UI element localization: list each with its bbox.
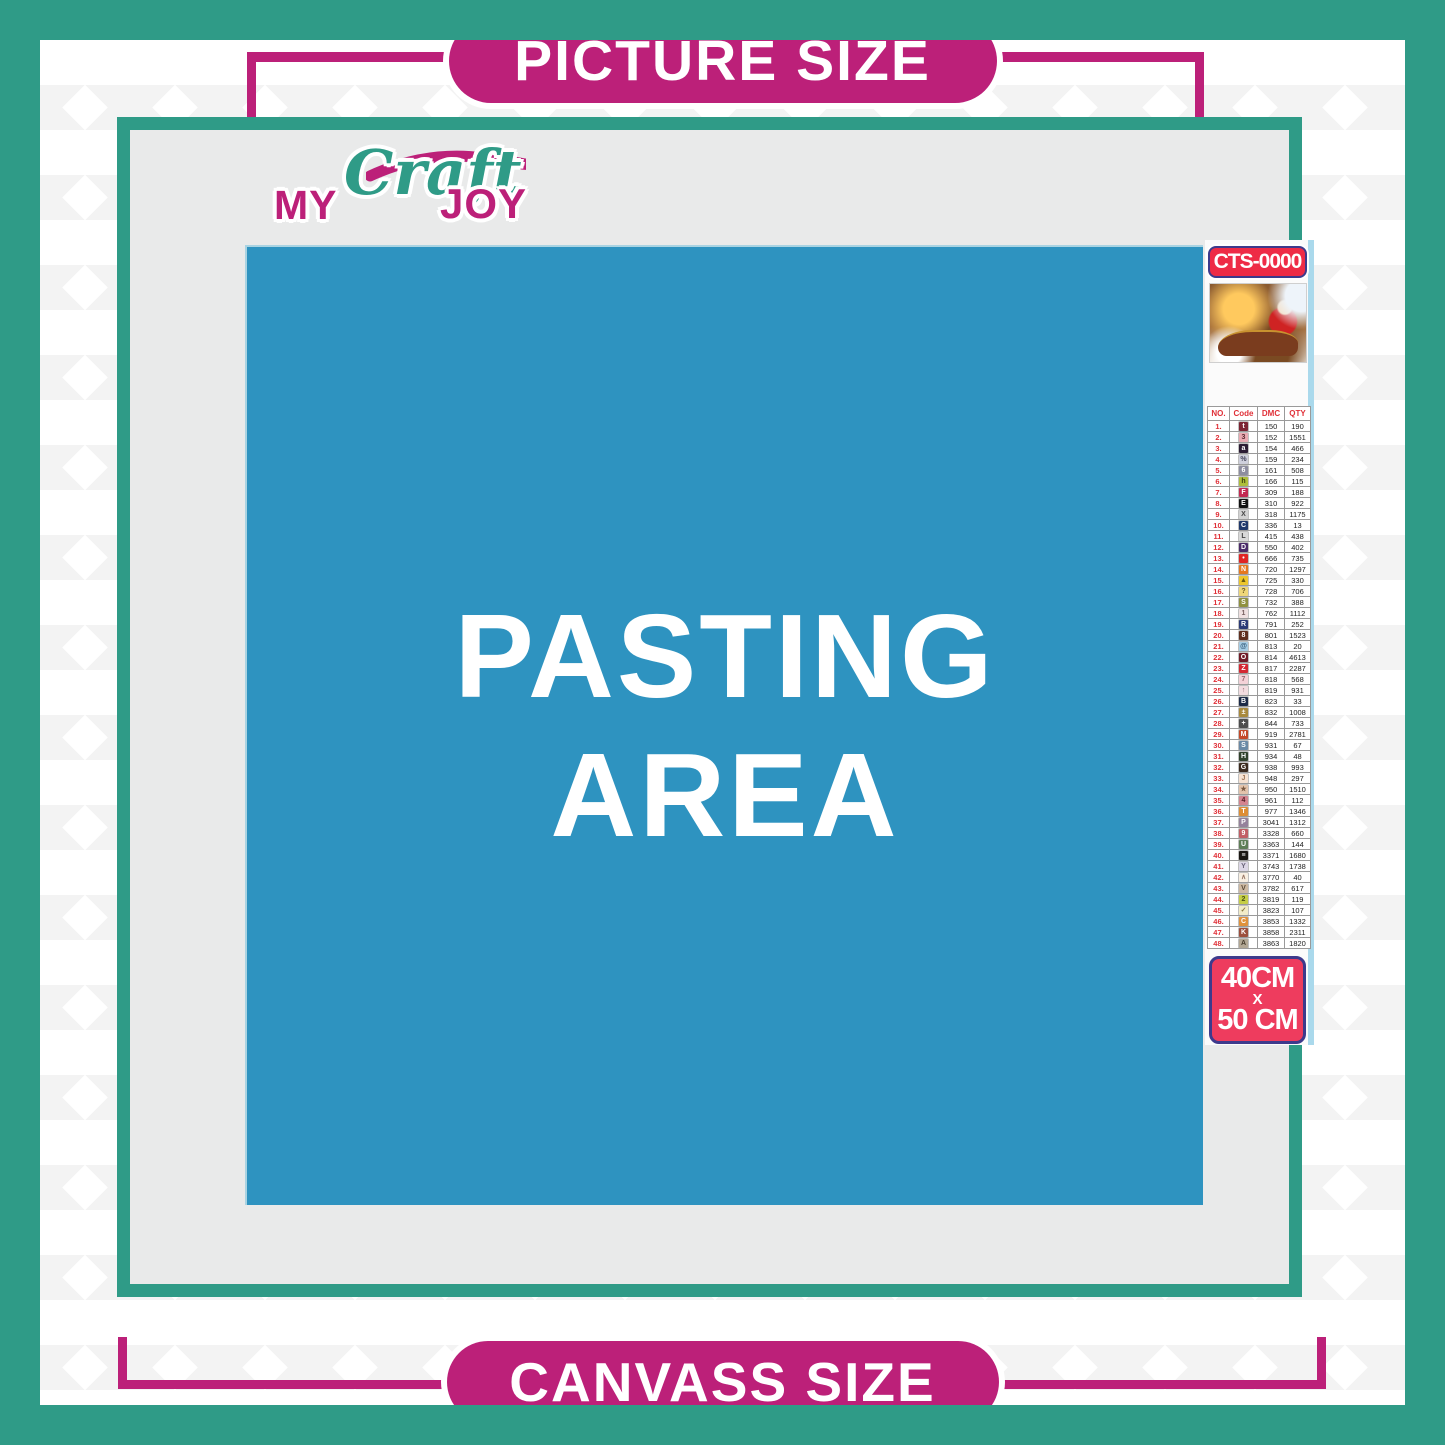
legend-row: 11.L415438 xyxy=(1208,531,1311,542)
legend-cell-no: 47. xyxy=(1208,927,1230,938)
legend-row: 2.31521551 xyxy=(1208,432,1311,443)
legend-cell-no: 44. xyxy=(1208,894,1230,905)
legend-cell-qty: 1008 xyxy=(1285,707,1311,718)
legend-cell-dmc: 310 xyxy=(1258,498,1285,509)
color-symbol-icon: S xyxy=(1239,598,1248,607)
legend-cell-no: 23. xyxy=(1208,663,1230,674)
legend-cell-dmc: 152 xyxy=(1258,432,1285,443)
legend-cell-code: M xyxy=(1230,729,1258,740)
legend-cell-code: ↑ xyxy=(1230,685,1258,696)
legend-cell-qty: 48 xyxy=(1285,751,1311,762)
legend-cell-qty: 297 xyxy=(1285,773,1311,784)
legend-cell-code: 1 xyxy=(1230,608,1258,619)
color-symbol-icon: ∧ xyxy=(1239,873,1248,882)
color-symbol-icon: 9 xyxy=(1239,829,1248,838)
legend-row: 36.T9771346 xyxy=(1208,806,1311,817)
legend-sheet: CTS-0000 NO. Code DMC QTY 1.t1501902.315… xyxy=(1205,240,1314,1045)
legend-row: 28.+844733 xyxy=(1208,718,1311,729)
legend-row: 27.±8321008 xyxy=(1208,707,1311,718)
legend-cell-dmc: 725 xyxy=(1258,575,1285,586)
legend-cell-code: ▲ xyxy=(1230,575,1258,586)
legend-cell-dmc: 318 xyxy=(1258,509,1285,520)
color-symbol-icon: 2 xyxy=(1239,895,1248,904)
legend-header-no: NO. xyxy=(1208,407,1230,421)
legend-cell-code: L xyxy=(1230,531,1258,542)
legend-row: 44.23819119 xyxy=(1208,894,1311,905)
legend-cell-code: Y xyxy=(1230,861,1258,872)
legend-cell-code: 2 xyxy=(1230,894,1258,905)
legend-row: 3.a154466 xyxy=(1208,443,1311,454)
legend-cell-no: 7. xyxy=(1208,487,1230,498)
legend-cell-dmc: 720 xyxy=(1258,564,1285,575)
legend-cell-qty: 1175 xyxy=(1285,509,1311,520)
legend-cell-dmc: 934 xyxy=(1258,751,1285,762)
canvass-size-pill: CANVASS SIZE xyxy=(447,1341,999,1423)
canvas-size-badge: 40CM X 50 CM xyxy=(1209,956,1306,1044)
legend-cell-qty: 1112 xyxy=(1285,608,1311,619)
color-symbol-icon: ↑ xyxy=(1239,686,1248,695)
legend-cell-qty: 1332 xyxy=(1285,916,1311,927)
legend-cell-qty: 706 xyxy=(1285,586,1311,597)
color-symbol-icon: J xyxy=(1239,774,1248,783)
legend-cell-code: ± xyxy=(1230,707,1258,718)
legend-cell-qty: 40 xyxy=(1285,872,1311,883)
color-symbol-icon: ± xyxy=(1239,708,1248,717)
legend-cell-qty: 190 xyxy=(1285,421,1311,432)
legend-cell-qty: 2311 xyxy=(1285,927,1311,938)
color-symbol-icon: G xyxy=(1239,763,1248,772)
legend-cell-dmc: 166 xyxy=(1258,476,1285,487)
legend-cell-dmc: 666 xyxy=(1258,553,1285,564)
legend-cell-qty: 33 xyxy=(1285,696,1311,707)
color-symbol-icon: N xyxy=(1239,565,1248,574)
color-symbol-icon: T xyxy=(1239,807,1248,816)
legend-cell-no: 39. xyxy=(1208,839,1230,850)
legend-row: 13.•666735 xyxy=(1208,553,1311,564)
legend-cell-dmc: 938 xyxy=(1258,762,1285,773)
legend-cell-dmc: 961 xyxy=(1258,795,1285,806)
legend-cell-qty: 144 xyxy=(1285,839,1311,850)
legend-row: 8.E310922 xyxy=(1208,498,1311,509)
legend-cell-qty: 438 xyxy=(1285,531,1311,542)
legend-cell-no: 40. xyxy=(1208,850,1230,861)
legend-cell-dmc: 814 xyxy=(1258,652,1285,663)
legend-cell-code: X xyxy=(1230,509,1258,520)
legend-cell-qty: 234 xyxy=(1285,454,1311,465)
legend-cell-no: 24. xyxy=(1208,674,1230,685)
legend-cell-no: 1. xyxy=(1208,421,1230,432)
legend-cell-dmc: 3328 xyxy=(1258,828,1285,839)
legend-cell-no: 37. xyxy=(1208,817,1230,828)
legend-row: 30.S93167 xyxy=(1208,740,1311,751)
legend-cell-code: J xyxy=(1230,773,1258,784)
legend-cell-code: C xyxy=(1230,916,1258,927)
color-symbol-icon: D xyxy=(1239,543,1248,552)
color-symbol-icon: ★ xyxy=(1239,785,1248,794)
legend-cell-qty: 252 xyxy=(1285,619,1311,630)
legend-cell-code: 9 xyxy=(1230,828,1258,839)
sku-badge: CTS-0000 xyxy=(1208,246,1307,278)
legend-cell-dmc: 415 xyxy=(1258,531,1285,542)
legend-row: 22.O8144613 xyxy=(1208,652,1311,663)
legend-cell-no: 48. xyxy=(1208,938,1230,949)
legend-cell-dmc: 3853 xyxy=(1258,916,1285,927)
color-symbol-icon: 8 xyxy=(1239,631,1248,640)
legend-cell-qty: 508 xyxy=(1285,465,1311,476)
color-symbol-icon: M xyxy=(1239,730,1248,739)
legend-cell-code: B xyxy=(1230,696,1258,707)
legend-row: 33.J948297 xyxy=(1208,773,1311,784)
legend-cell-qty: 13 xyxy=(1285,520,1311,531)
legend-cell-no: 33. xyxy=(1208,773,1230,784)
legend-cell-no: 25. xyxy=(1208,685,1230,696)
logo-word-joy: JOY xyxy=(440,180,527,228)
legend-cell-dmc: 762 xyxy=(1258,608,1285,619)
legend-row: 19.R791252 xyxy=(1208,619,1311,630)
legend-cell-code: a xyxy=(1230,443,1258,454)
legend-cell-no: 9. xyxy=(1208,509,1230,520)
legend-cell-no: 35. xyxy=(1208,795,1230,806)
color-symbol-icon: ▲ xyxy=(1239,576,1248,585)
legend-row: 6.h166115 xyxy=(1208,476,1311,487)
legend-row: 17.S732388 xyxy=(1208,597,1311,608)
color-legend-table: NO. Code DMC QTY 1.t1501902.315215513.a1… xyxy=(1207,406,1311,949)
color-symbol-icon: V xyxy=(1239,884,1248,893)
color-symbol-icon: F xyxy=(1239,488,1248,497)
legend-header-dmc: DMC xyxy=(1258,407,1285,421)
legend-cell-code: E xyxy=(1230,498,1258,509)
size-width-label: 40CM xyxy=(1221,965,1294,993)
legend-cell-code: ∧ xyxy=(1230,872,1258,883)
legend-header-row: NO. Code DMC QTY xyxy=(1208,407,1311,421)
legend-cell-dmc: 3823 xyxy=(1258,905,1285,916)
legend-cell-code: t xyxy=(1230,421,1258,432)
legend-cell-dmc: 948 xyxy=(1258,773,1285,784)
pasting-area: PASTING AREA xyxy=(245,245,1203,1205)
legend-cell-dmc: 3858 xyxy=(1258,927,1285,938)
color-symbol-icon: 4 xyxy=(1239,796,1248,805)
legend-cell-no: 17. xyxy=(1208,597,1230,608)
legend-row: 35.4961112 xyxy=(1208,795,1311,806)
legend-cell-dmc: 336 xyxy=(1258,520,1285,531)
logo-word-my: MY xyxy=(274,182,338,229)
legend-cell-no: 45. xyxy=(1208,905,1230,916)
legend-cell-qty: 188 xyxy=(1285,487,1311,498)
legend-cell-qty: 2781 xyxy=(1285,729,1311,740)
legend-cell-dmc: 3041 xyxy=(1258,817,1285,828)
legend-cell-no: 18. xyxy=(1208,608,1230,619)
legend-cell-no: 13. xyxy=(1208,553,1230,564)
legend-cell-qty: 1738 xyxy=(1285,861,1311,872)
legend-cell-dmc: 3782 xyxy=(1258,883,1285,894)
legend-row: 21.@81320 xyxy=(1208,641,1311,652)
legend-cell-code: ≡ xyxy=(1230,850,1258,861)
legend-cell-code: S xyxy=(1230,597,1258,608)
legend-cell-dmc: 819 xyxy=(1258,685,1285,696)
color-symbol-icon: @ xyxy=(1239,642,1248,651)
legend-row: 9.X3181175 xyxy=(1208,509,1311,520)
legend-row: 34.★9501510 xyxy=(1208,784,1311,795)
legend-row: 40.≡33711680 xyxy=(1208,850,1311,861)
legend-row: 4.%159234 xyxy=(1208,454,1311,465)
color-symbol-icon: O xyxy=(1239,653,1248,662)
legend-cell-code: + xyxy=(1230,718,1258,729)
legend-cell-dmc: 3371 xyxy=(1258,850,1285,861)
legend-cell-qty: 107 xyxy=(1285,905,1311,916)
legend-row: 16.?728706 xyxy=(1208,586,1311,597)
legend-cell-qty: 922 xyxy=(1285,498,1311,509)
sku-label: CTS-0000 xyxy=(1214,250,1302,274)
legend-cell-qty: 1551 xyxy=(1285,432,1311,443)
legend-row: 25.↑819931 xyxy=(1208,685,1311,696)
legend-cell-code: 3 xyxy=(1230,432,1258,443)
legend-cell-code: N xyxy=(1230,564,1258,575)
legend-cell-code: ? xyxy=(1230,586,1258,597)
legend-row: 47.K38582311 xyxy=(1208,927,1311,938)
pasting-area-line2: AREA xyxy=(550,726,899,865)
legend-cell-no: 36. xyxy=(1208,806,1230,817)
color-symbol-icon: ? xyxy=(1239,587,1248,596)
legend-row: 42.∧377040 xyxy=(1208,872,1311,883)
legend-cell-qty: 1680 xyxy=(1285,850,1311,861)
legend-cell-no: 31. xyxy=(1208,751,1230,762)
legend-cell-no: 46. xyxy=(1208,916,1230,927)
legend-cell-code: O xyxy=(1230,652,1258,663)
color-symbol-icon: U xyxy=(1239,840,1248,849)
legend-cell-code: U xyxy=(1230,839,1258,850)
legend-cell-code: C xyxy=(1230,520,1258,531)
legend-cell-qty: 119 xyxy=(1285,894,1311,905)
legend-cell-dmc: 977 xyxy=(1258,806,1285,817)
legend-cell-dmc: 150 xyxy=(1258,421,1285,432)
color-symbol-icon: H xyxy=(1239,752,1248,761)
legend-cell-no: 4. xyxy=(1208,454,1230,465)
legend-cell-code: % xyxy=(1230,454,1258,465)
legend-cell-no: 41. xyxy=(1208,861,1230,872)
legend-cell-dmc: 801 xyxy=(1258,630,1285,641)
legend-cell-dmc: 791 xyxy=(1258,619,1285,630)
legend-cell-qty: 330 xyxy=(1285,575,1311,586)
legend-cell-dmc: 3770 xyxy=(1258,872,1285,883)
color-symbol-icon: A xyxy=(1239,939,1248,948)
legend-cell-no: 42. xyxy=(1208,872,1230,883)
legend-cell-qty: 568 xyxy=(1285,674,1311,685)
legend-cell-qty: 735 xyxy=(1285,553,1311,564)
legend-cell-no: 30. xyxy=(1208,740,1230,751)
legend-cell-code: ✓ xyxy=(1230,905,1258,916)
legend-cell-no: 21. xyxy=(1208,641,1230,652)
canvass-size-bracket-right xyxy=(1317,1337,1326,1389)
legend-cell-dmc: 931 xyxy=(1258,740,1285,751)
color-symbol-icon: 1 xyxy=(1239,609,1248,618)
legend-cell-qty: 388 xyxy=(1285,597,1311,608)
legend-cell-qty: 112 xyxy=(1285,795,1311,806)
legend-cell-qty: 931 xyxy=(1285,685,1311,696)
legend-cell-code: V xyxy=(1230,883,1258,894)
legend-cell-qty: 1523 xyxy=(1285,630,1311,641)
legend-cell-code: Z xyxy=(1230,663,1258,674)
legend-cell-dmc: 159 xyxy=(1258,454,1285,465)
legend-cell-code: 4 xyxy=(1230,795,1258,806)
color-symbol-icon: • xyxy=(1239,554,1248,563)
legend-row: 31.H93448 xyxy=(1208,751,1311,762)
legend-cell-dmc: 3819 xyxy=(1258,894,1285,905)
legend-cell-dmc: 823 xyxy=(1258,696,1285,707)
legend-cell-dmc: 3863 xyxy=(1258,938,1285,949)
legend-cell-code: S xyxy=(1230,740,1258,751)
legend-row: 41.Y37431738 xyxy=(1208,861,1311,872)
legend-cell-no: 19. xyxy=(1208,619,1230,630)
color-symbol-icon: S xyxy=(1239,741,1248,750)
size-height-label: 50 CM xyxy=(1217,1007,1297,1035)
legend-cell-no: 43. xyxy=(1208,883,1230,894)
color-symbol-icon: E xyxy=(1239,499,1248,508)
legend-cell-qty: 617 xyxy=(1285,883,1311,894)
legend-cell-code: 6 xyxy=(1230,465,1258,476)
legend-cell-code: F xyxy=(1230,487,1258,498)
legend-cell-dmc: 728 xyxy=(1258,586,1285,597)
legend-row: 37.P30411312 xyxy=(1208,817,1311,828)
legend-header-qty: QTY xyxy=(1285,407,1311,421)
color-symbol-icon: R xyxy=(1239,620,1248,629)
legend-cell-qty: 1297 xyxy=(1285,564,1311,575)
legend-cell-no: 16. xyxy=(1208,586,1230,597)
brand-logo: MY Craft JOY xyxy=(268,140,538,245)
sleigh-icon xyxy=(1218,330,1299,355)
color-symbol-icon: X xyxy=(1239,510,1248,519)
legend-row: 24.7818568 xyxy=(1208,674,1311,685)
legend-row: 5.6161508 xyxy=(1208,465,1311,476)
legend-cell-no: 22. xyxy=(1208,652,1230,663)
pasting-area-line1: PASTING xyxy=(454,587,995,726)
legend-row: 39.U3363144 xyxy=(1208,839,1311,850)
legend-cell-no: 38. xyxy=(1208,828,1230,839)
legend-cell-no: 26. xyxy=(1208,696,1230,707)
legend-row: 26.B82333 xyxy=(1208,696,1311,707)
legend-row: 48.A38631820 xyxy=(1208,938,1311,949)
legend-cell-code: ★ xyxy=(1230,784,1258,795)
legend-cell-dmc: 844 xyxy=(1258,718,1285,729)
color-symbol-icon: 6 xyxy=(1239,466,1248,475)
color-symbol-icon: t xyxy=(1239,422,1248,431)
legend-cell-dmc: 732 xyxy=(1258,597,1285,608)
legend-cell-qty: 466 xyxy=(1285,443,1311,454)
color-symbol-icon: C xyxy=(1239,917,1248,926)
legend-row: 38.93328660 xyxy=(1208,828,1311,839)
legend-cell-no: 15. xyxy=(1208,575,1230,586)
color-symbol-icon: C xyxy=(1239,521,1248,530)
legend-cell-qty: 4613 xyxy=(1285,652,1311,663)
legend-cell-no: 20. xyxy=(1208,630,1230,641)
legend-cell-code: K xyxy=(1230,927,1258,938)
legend-cell-code: • xyxy=(1230,553,1258,564)
legend-cell-code: T xyxy=(1230,806,1258,817)
legend-cell-code: G xyxy=(1230,762,1258,773)
legend-cell-no: 2. xyxy=(1208,432,1230,443)
legend-row: 10.C33613 xyxy=(1208,520,1311,531)
legend-cell-no: 3. xyxy=(1208,443,1230,454)
color-symbol-icon: Z xyxy=(1239,664,1248,673)
legend-table-body: 1.t1501902.315215513.a1544664.%1592345.6… xyxy=(1208,421,1311,949)
kit-thumbnail-image xyxy=(1209,283,1307,363)
legend-row: 12.D550402 xyxy=(1208,542,1311,553)
legend-row: 32.G938993 xyxy=(1208,762,1311,773)
legend-cell-dmc: 813 xyxy=(1258,641,1285,652)
legend-cell-dmc: 309 xyxy=(1258,487,1285,498)
legend-cell-code: H xyxy=(1230,751,1258,762)
legend-row: 46.C38531332 xyxy=(1208,916,1311,927)
legend-cell-no: 14. xyxy=(1208,564,1230,575)
legend-row: 45.✓3823107 xyxy=(1208,905,1311,916)
legend-row: 29.M9192781 xyxy=(1208,729,1311,740)
canvass-size-label: CANVASS SIZE xyxy=(509,1350,935,1414)
color-symbol-icon: a xyxy=(1239,444,1248,453)
legend-cell-qty: 660 xyxy=(1285,828,1311,839)
color-symbol-icon: P xyxy=(1239,818,1248,827)
legend-cell-no: 5. xyxy=(1208,465,1230,476)
legend-cell-qty: 1510 xyxy=(1285,784,1311,795)
legend-row: 43.V3782617 xyxy=(1208,883,1311,894)
legend-cell-no: 10. xyxy=(1208,520,1230,531)
color-symbol-icon: 3 xyxy=(1239,433,1248,442)
legend-cell-code: @ xyxy=(1230,641,1258,652)
legend-cell-dmc: 3743 xyxy=(1258,861,1285,872)
legend-row: 18.17621112 xyxy=(1208,608,1311,619)
legend-cell-qty: 115 xyxy=(1285,476,1311,487)
legend-cell-dmc: 832 xyxy=(1258,707,1285,718)
color-symbol-icon: 7 xyxy=(1239,675,1248,684)
legend-cell-dmc: 154 xyxy=(1258,443,1285,454)
legend-cell-qty: 20 xyxy=(1285,641,1311,652)
legend-cell-qty: 1346 xyxy=(1285,806,1311,817)
legend-cell-code: P xyxy=(1230,817,1258,828)
legend-cell-code: 7 xyxy=(1230,674,1258,685)
legend-cell-dmc: 817 xyxy=(1258,663,1285,674)
legend-cell-no: 12. xyxy=(1208,542,1230,553)
color-symbol-icon: ≡ xyxy=(1239,851,1248,860)
legend-cell-no: 34. xyxy=(1208,784,1230,795)
color-symbol-icon: K xyxy=(1239,928,1248,937)
color-symbol-icon: ✓ xyxy=(1239,906,1248,915)
legend-cell-qty: 402 xyxy=(1285,542,1311,553)
color-symbol-icon: % xyxy=(1239,455,1248,464)
legend-cell-no: 27. xyxy=(1208,707,1230,718)
legend-cell-qty: 1820 xyxy=(1285,938,1311,949)
color-symbol-icon: B xyxy=(1239,697,1248,706)
legend-cell-code: A xyxy=(1230,938,1258,949)
legend-cell-dmc: 919 xyxy=(1258,729,1285,740)
legend-cell-code: R xyxy=(1230,619,1258,630)
picture-size-label: PICTURE SIZE xyxy=(514,28,931,94)
color-symbol-icon: h xyxy=(1239,477,1248,486)
legend-cell-dmc: 550 xyxy=(1258,542,1285,553)
color-symbol-icon: + xyxy=(1239,719,1248,728)
legend-row: 15.▲725330 xyxy=(1208,575,1311,586)
legend-cell-qty: 67 xyxy=(1285,740,1311,751)
legend-row: 1.t150190 xyxy=(1208,421,1311,432)
legend-cell-no: 32. xyxy=(1208,762,1230,773)
legend-cell-no: 11. xyxy=(1208,531,1230,542)
legend-cell-qty: 1312 xyxy=(1285,817,1311,828)
canvass-size-bracket-left xyxy=(118,1337,127,1389)
color-symbol-icon: L xyxy=(1239,532,1248,541)
legend-cell-dmc: 161 xyxy=(1258,465,1285,476)
legend-row: 20.88011523 xyxy=(1208,630,1311,641)
legend-row: 7.F309188 xyxy=(1208,487,1311,498)
picture-size-pill: PICTURE SIZE xyxy=(449,19,997,103)
legend-cell-code: D xyxy=(1230,542,1258,553)
legend-cell-qty: 2287 xyxy=(1285,663,1311,674)
